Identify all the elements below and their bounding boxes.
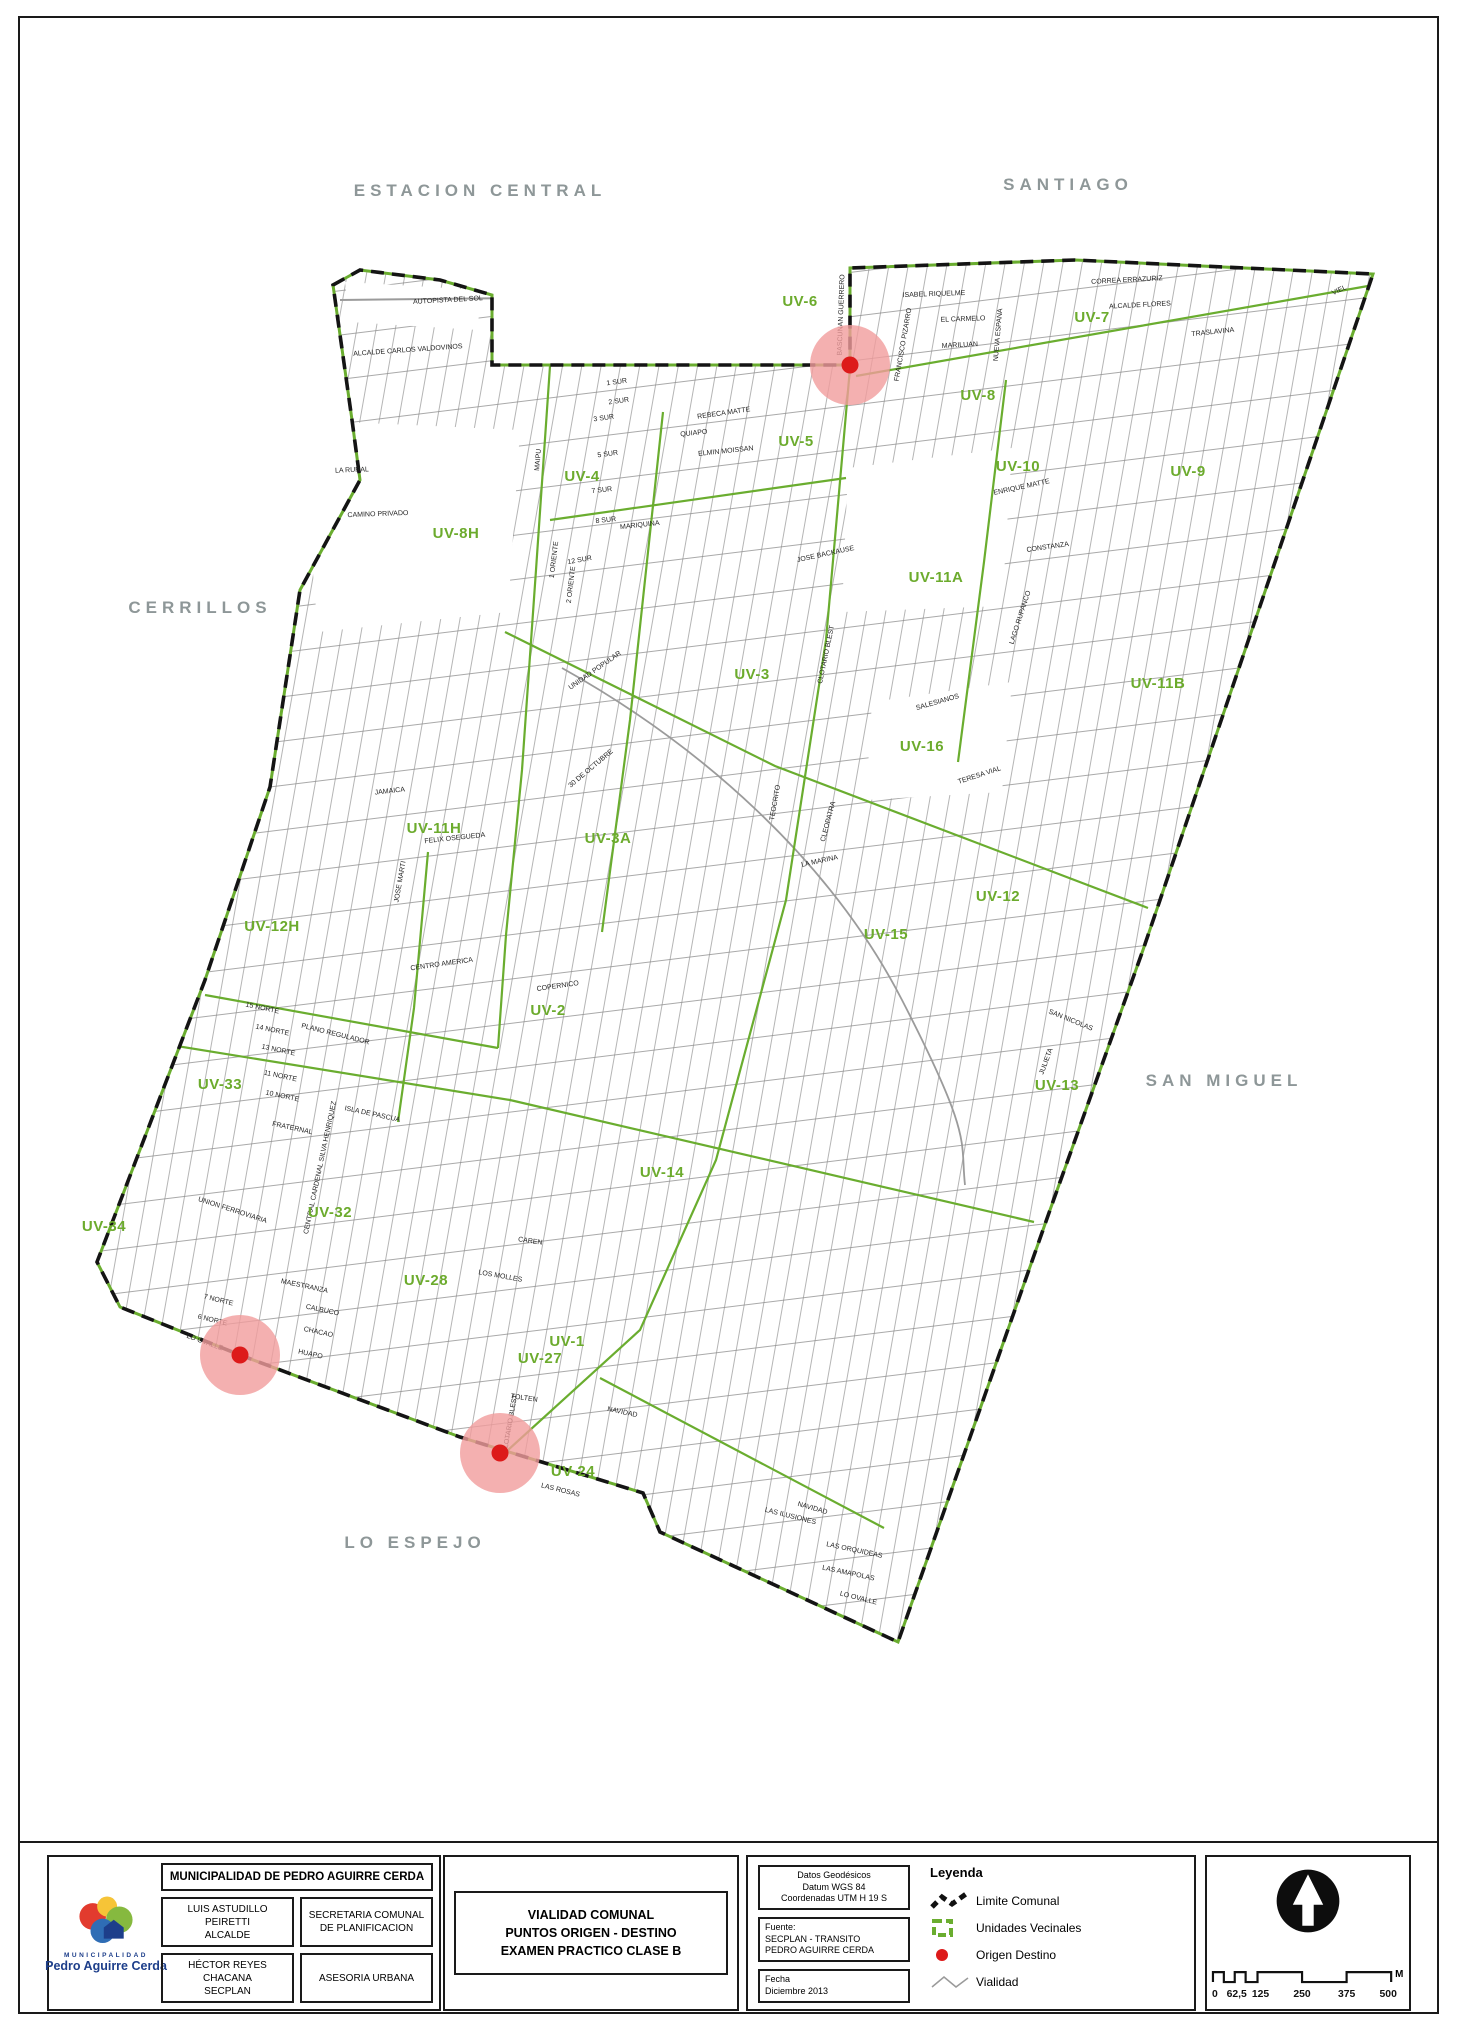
scale-label: 375: [1338, 1989, 1356, 2000]
official-alcalde-box: LUIS ASTUDILLO PEIRETTI ALCALDE: [161, 1897, 294, 1947]
geodesic-data-box: Datos Geodésicos Datum WGS 84 Coordenada…: [758, 1865, 910, 1910]
area-label-cerrillos: CERRILLOS: [128, 598, 271, 617]
scale-bar: M 0 62,5 125 250 375 500: [1209, 1965, 1407, 2005]
official-role: SECPLAN: [165, 1985, 290, 1998]
uv-label-uv-6: UV-6: [782, 293, 817, 310]
scale-label: 125: [1252, 1989, 1270, 2000]
uv-label-uv-11h: UV-11H: [407, 820, 462, 837]
legend-item-limite-comunal: Limite Comunal: [930, 1887, 1184, 1914]
legend-metadata-panel: Datos Geodésicos Datum WGS 84 Coordenada…: [746, 1855, 1196, 2011]
area-label-santiago: SANTIAGO: [1003, 175, 1133, 194]
geodesic-line: Datum WGS 84: [765, 1882, 903, 1894]
uv-label-uv-13: UV-13: [1035, 1077, 1079, 1094]
uv-label-uv-10: UV-10: [996, 458, 1040, 475]
area-label-san-miguel: SAN MIGUEL: [1146, 1071, 1303, 1090]
uv-label-uv-3: UV-3: [734, 666, 769, 683]
municipality-logo: MUNICIPALIDAD Pedro Aguirre Cerda: [55, 1863, 157, 2003]
official-role: ALCALDE: [165, 1929, 290, 1942]
uv-label-uv-12h: UV-12H: [244, 918, 300, 935]
source-line: SECPLAN - TRANSITO: [765, 1934, 903, 1946]
logo-text-municipalidad: MUNICIPALIDAD: [64, 1952, 148, 1959]
municipality-header: MUNICIPALIDAD DE PEDRO AGUIRRE CERDA: [161, 1863, 433, 1891]
uv-label-uv-1: UV-1: [549, 1333, 584, 1350]
vialidad-icon: [930, 1972, 976, 1992]
municipality-emblem-icon: [75, 1894, 137, 1950]
uv-label-uv-8: UV-8: [960, 387, 995, 404]
date-line: Fecha: [765, 1974, 903, 1986]
uv-label-uv-15: UV-15: [864, 926, 908, 943]
uv-label-uv-7: UV-7: [1074, 309, 1109, 326]
uv-label-uv-5: UV-5: [778, 433, 813, 450]
map-titleblock-divider: [18, 1841, 1439, 1843]
map-title-line2: PUNTOS ORIGEN - DESTINO: [458, 1924, 724, 1942]
origin-destino-point-2: [200, 1315, 280, 1395]
legend-title: Leyenda: [930, 1865, 1184, 1880]
unidades-vecinales-icon: [930, 1918, 976, 1938]
uv-label-uv-9: UV-9: [1170, 463, 1205, 480]
origin-destino-point-1: [810, 325, 890, 405]
uv-label-uv-27: UV-27: [518, 1350, 562, 1367]
area-label-lo-espejo: LO ESPEJO: [344, 1533, 485, 1552]
scale-label: 0: [1212, 1989, 1218, 2000]
official-name: LUIS ASTUDILLO PEIRETTI: [165, 1903, 290, 1929]
uv-label-uv-16: UV-16: [900, 738, 944, 755]
source-line: Fuente:: [765, 1922, 903, 1934]
north-arrow-scale-panel: M 0 62,5 125 250 375 500: [1205, 1855, 1411, 2011]
area-label-estacion-central: ESTACION CENTRAL: [354, 181, 607, 200]
logo-text-pedro-aguirre-cerda: Pedro Aguirre Cerda: [45, 1959, 167, 1973]
street-label: LA RURAL: [335, 466, 369, 474]
legend-item-vialidad: Vialidad: [930, 1968, 1184, 1995]
uv-label-uv-24: UV-24: [551, 1463, 595, 1480]
origen-destino-icon: [930, 1945, 976, 1965]
uv-label-uv-12: UV-12: [976, 888, 1020, 905]
uv-label-uv-32: UV-32: [308, 1204, 352, 1221]
official-secplan-box: HÉCTOR REYES CHACANA SECPLAN: [161, 1953, 294, 2003]
date-box: Fecha Diciembre 2013: [758, 1969, 910, 2002]
legend-label: Vialidad: [976, 1975, 1018, 1989]
uv-label-uv-4: UV-4: [564, 468, 600, 485]
legend-item-origen-destino: Origen Destino: [930, 1941, 1184, 1968]
legend: Leyenda Limite Comunal Unidades Vecinale…: [930, 1865, 1184, 2001]
legend-item-unidades-vecinales: Unidades Vecinales: [930, 1914, 1184, 1941]
legend-label: Unidades Vecinales: [976, 1921, 1081, 1935]
uv-label-uv-14: UV-14: [640, 1164, 684, 1181]
map-title-box: VIALIDAD COMUNAL PUNTOS ORIGEN - DESTINO…: [454, 1891, 728, 1975]
origin-destino-point-3: [460, 1413, 540, 1493]
department-asesoria-box: ASESORIA URBANA: [300, 1953, 433, 2003]
source-box: Fuente: SECPLAN - TRANSITO PEDRO AGUIRRE…: [758, 1917, 910, 1962]
uv-label-uv-3a: UV-3A: [585, 830, 632, 847]
uv-label-uv-11a: UV-11A: [909, 569, 964, 586]
geodesic-line: Datos Geodésicos: [765, 1870, 903, 1882]
street-label: LAS ROSAS: [540, 1482, 581, 1498]
legend-label: Limite Comunal: [976, 1894, 1059, 1908]
uv-label-uv-28: UV-28: [404, 1272, 448, 1289]
scale-unit: M: [1395, 1969, 1403, 1980]
department-planificacion-box: SECRETARIA COMUNAL DE PLANIFICACION: [300, 1897, 433, 1947]
uv-label-uv-33: UV-33: [198, 1076, 242, 1093]
uv-label-uv-2: UV-2: [530, 1002, 565, 1019]
scale-labels: 0 62,5 125 250 375 500: [1212, 1989, 1397, 2000]
scale-label: 62,5: [1227, 1989, 1247, 2000]
uv-label-uv-8h: UV-8H: [433, 525, 480, 542]
official-name: HÉCTOR REYES CHACANA: [165, 1959, 290, 1985]
scale-label: 500: [1380, 1989, 1398, 2000]
map-title-line3: EXAMEN PRACTICO CLASE B: [458, 1942, 724, 1960]
map-title-panel: VIALIDAD COMUNAL PUNTOS ORIGEN - DESTINO…: [443, 1855, 739, 2011]
source-line: PEDRO AGUIRRE CERDA: [765, 1945, 903, 1957]
north-arrow-icon: [1270, 1863, 1346, 1939]
municipality-panel: MUNICIPALIDAD Pedro Aguirre Cerda MUNICI…: [47, 1855, 441, 2011]
geodesic-line: Coordenadas UTM H 19 S: [765, 1893, 903, 1905]
uv-label-uv-34: UV-34: [82, 1218, 126, 1235]
legend-label: Origen Destino: [976, 1948, 1056, 1962]
date-line: Diciembre 2013: [765, 1986, 903, 1998]
limite-comunal-icon: [930, 1891, 976, 1911]
map-title-line1: VIALIDAD COMUNAL: [458, 1906, 724, 1924]
communal-road-map: ESTACION CENTRALSANTIAGOCERRILLOSSAN MIG…: [0, 0, 1458, 1840]
street-grid: [80, 200, 1400, 1670]
uv-label-uv-11b: UV-11B: [1131, 675, 1186, 692]
scale-label: 250: [1293, 1989, 1311, 2000]
